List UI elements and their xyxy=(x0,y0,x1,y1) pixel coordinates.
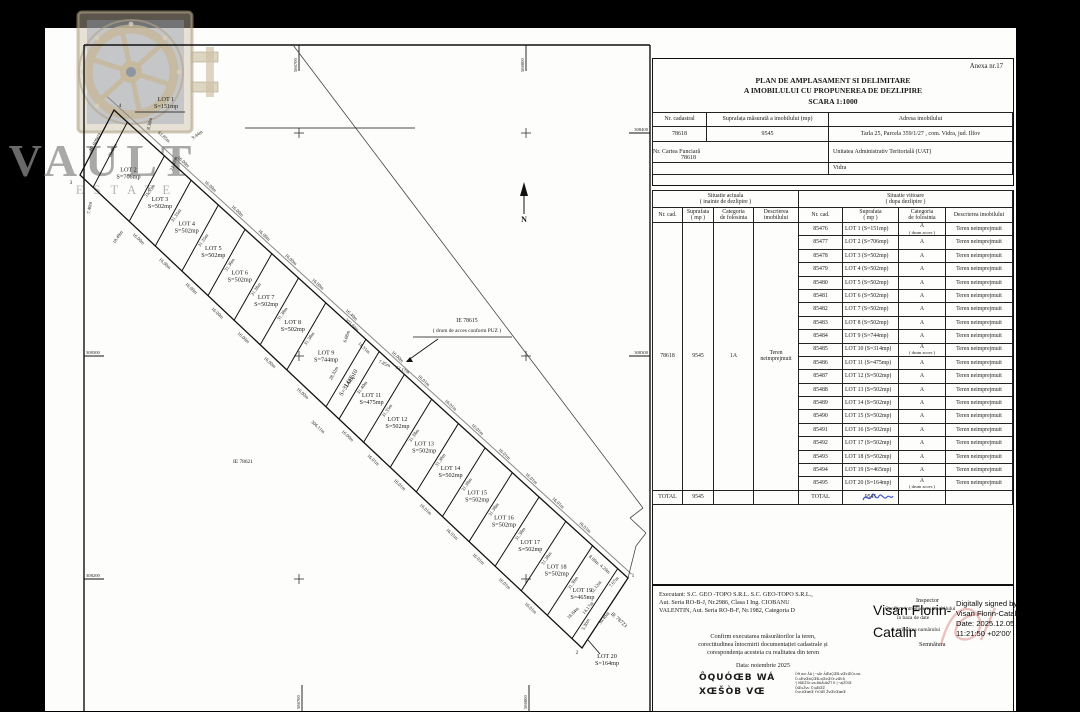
vault-rivet xyxy=(163,36,168,41)
description-cell: Teren neimprejmuit xyxy=(946,316,1013,329)
category-cell: A xyxy=(899,316,946,329)
description-cell: Teren neimprejmuit xyxy=(946,370,1013,383)
lot-area-label: S=502mp xyxy=(518,546,542,553)
lot-name-label: LOT 6 xyxy=(231,270,248,277)
description-cell: Teren neimprejmuit xyxy=(946,410,1013,423)
column-header: Categoria de folosinta xyxy=(899,208,946,223)
lot-name-label: LOT 19 xyxy=(573,587,593,594)
lot-area-label: S=475mp xyxy=(360,399,384,406)
lot-name-label: LOT 1 xyxy=(158,96,175,103)
division-measurement: 31.38m xyxy=(304,332,317,347)
north-arrow-head xyxy=(520,182,528,196)
empty-cell xyxy=(653,163,829,175)
lot-name-label: LOT 3 xyxy=(152,196,169,203)
vault-hub-inner xyxy=(126,67,136,77)
lot-area-label: S=706mp xyxy=(116,174,140,181)
category-cell: A xyxy=(899,383,946,396)
current-situation-header: Situatie actuala ( inainte de dezlipire … xyxy=(653,191,799,208)
lot-cell: LOT 4 (S=502mp) xyxy=(843,263,899,276)
lot-name-label: LOT 14 xyxy=(441,465,461,472)
description-cell: Teren neimprejmuit xyxy=(946,450,1013,463)
category-cell: A xyxy=(899,303,946,316)
grid-coordinate-label: 586700 xyxy=(293,58,298,72)
category-cell: A xyxy=(899,423,946,436)
total-row: TOTAL9545TOTAL9545 xyxy=(653,490,1013,504)
current-situation-cell: Teren neimprejmuit xyxy=(754,223,799,491)
lot-name-label: LOT 8 xyxy=(285,319,302,326)
lot-division-line xyxy=(390,399,431,467)
category-cell: A xyxy=(899,276,946,289)
parcel-id-label: IE 78723 xyxy=(609,611,628,629)
lot-cell: LOT 1 (S=151mp) xyxy=(843,223,899,236)
measurement-label: 18.49m xyxy=(112,230,125,245)
plan-title-scale: SCARA 1:1000 xyxy=(653,97,1013,106)
total-label: TOTAL xyxy=(799,490,843,504)
category-cell: A xyxy=(899,370,946,383)
lot-division-line xyxy=(260,278,298,345)
measurement-label: 30.40m xyxy=(598,611,611,626)
description-cell: Teren neimprejmuit xyxy=(946,423,1013,436)
column-header: Nr. cad. xyxy=(799,208,843,223)
land-book-value: 78618 xyxy=(681,155,696,162)
address-header: Adresa imobilului xyxy=(829,113,1013,127)
empty-cell xyxy=(946,490,1013,504)
lot-name-label: LOT 13 xyxy=(414,441,434,448)
grid-coordinate-label: 308300 xyxy=(86,350,100,355)
cad-number-cell: 85488 xyxy=(799,383,843,396)
vault-rivet xyxy=(129,22,134,27)
empty-cell xyxy=(714,490,754,504)
lot-cell: LOT 14 (S=502mp) xyxy=(843,397,899,410)
description-cell: Teren neimprejmuit xyxy=(946,477,1013,490)
column-header: Suprafata ( mp ) xyxy=(843,208,899,223)
adjacent-parcel-boundary xyxy=(630,518,646,533)
cad-number-cell: 85484 xyxy=(799,330,843,343)
lot-division-line xyxy=(495,497,539,566)
callout-arrow-line xyxy=(407,339,438,361)
total-label: TOTAL xyxy=(653,490,683,504)
current-situation-cell: 9545 xyxy=(683,223,714,491)
category-cell: A xyxy=(899,356,946,369)
adjacent-parcel-boundary xyxy=(636,533,646,546)
cad-number-cell: 85477 xyxy=(799,236,843,249)
uat-label: Unitatea Administrativ Teritorială (UAT) xyxy=(829,142,1013,163)
description-cell: Teren neimprejmuit xyxy=(946,263,1013,276)
lot-area-label: S=502mp xyxy=(412,448,436,455)
category-cell: A xyxy=(899,236,946,249)
road-callout-subtitle: ( drum de acces conform PUZ ) xyxy=(433,327,501,334)
vault-rivet xyxy=(95,104,100,109)
lot-name-label: LOT 20 xyxy=(597,653,617,660)
measurement-label: 5.30m xyxy=(582,618,592,631)
lot-division-line xyxy=(364,374,405,442)
watermark-vault-text: VAULT xyxy=(9,135,200,186)
plan-title-line2: A IMOBILULUI CU PROPUNEREA DE DEZLIPIRE xyxy=(653,86,1013,95)
road-callout-title: IE 78615 xyxy=(456,318,478,324)
description-cell: Teren neimprejmuit xyxy=(946,289,1013,302)
lot-name-label: LOT 11 xyxy=(362,392,381,399)
cadastral-number-header: Nr. cadastral xyxy=(653,113,707,127)
cad-number-cell: 85480 xyxy=(799,276,843,289)
current-situation-cell: 1A xyxy=(714,223,754,491)
measurement-label: 6.08m xyxy=(343,330,352,343)
land-book-label: Nr. Cartea Funciară xyxy=(653,149,700,155)
boundary-point-number: 3 xyxy=(70,180,73,186)
lot-name-label: LOT 2 xyxy=(120,167,137,174)
lot20-leader-line xyxy=(588,640,600,654)
cadastral-info-table: Nr. cadastral Suprafața măsurată a imobi… xyxy=(652,112,1013,175)
table-row: 7861895451ATeren neimprejmuit85476LOT 1 … xyxy=(653,223,1013,236)
adjacent-parcel-boundary xyxy=(630,508,643,518)
lot-cell: LOT 20 (S=164mp) xyxy=(843,477,899,490)
category-cell: A xyxy=(899,397,946,410)
grid-coordinate-label: 308400 xyxy=(634,127,648,132)
lot-cell: LOT 16 (S=502mp) xyxy=(843,423,899,436)
lot-division-line xyxy=(416,424,458,492)
measurement-label: 7.67m xyxy=(609,576,621,589)
lot-name-label: LOT 18 xyxy=(547,563,567,570)
category-cell: A xyxy=(899,249,946,262)
grid-coordinate-label: 308300 xyxy=(634,350,648,355)
cad-number-cell: 85476 xyxy=(799,223,843,236)
future-situation-header: Situatie viitoare ( dupa dezlipire ) xyxy=(799,191,1013,208)
lot-name-label: LOT 17 xyxy=(520,539,540,546)
category-cell: A xyxy=(899,330,946,343)
vault-rivet xyxy=(95,36,100,41)
cad-number-cell: 85492 xyxy=(799,437,843,450)
category-cell: A xyxy=(899,410,946,423)
cadastral-number-value: 78618 xyxy=(653,127,707,142)
category-cell: A xyxy=(899,464,946,477)
lot-area-label: S=502mp xyxy=(254,301,278,308)
lot-name-label: LOT 5 xyxy=(205,245,222,252)
lot-name-label: LOT 7 xyxy=(258,294,275,301)
cad-number-cell: 85482 xyxy=(799,303,843,316)
lot-name-label: LOT 12 xyxy=(388,416,408,423)
description-cell: Teren neimprejmuit xyxy=(946,356,1013,369)
lot-area-label: S=502mp xyxy=(492,521,516,528)
cad-number-cell: 85479 xyxy=(799,263,843,276)
measurement-label: 7.85m xyxy=(378,360,391,369)
category-cell: A xyxy=(899,450,946,463)
description-cell: Teren neimprejmuit xyxy=(946,343,1013,356)
plan-title-line1: PLAN DE AMPLASAMENT SI DELIMITARE xyxy=(653,76,1013,85)
cad-number-cell: 85486 xyxy=(799,356,843,369)
lot-area-label: S=502mp xyxy=(465,497,489,504)
description-cell: Teren neimprejmuit xyxy=(946,303,1013,316)
description-cell: Teren neimprejmuit xyxy=(946,330,1013,343)
cad-number-cell: 85490 xyxy=(799,410,843,423)
lot-name-label: LOT 16 xyxy=(494,514,514,521)
measured-area-value: 9545 xyxy=(707,127,829,142)
cad-number-cell: 85487 xyxy=(799,370,843,383)
cad-number-cell: 85485 xyxy=(799,343,843,356)
situation-table: Situatie actuala ( inainte de dezlipire … xyxy=(652,190,1013,505)
current-situation-cell: 78618 xyxy=(653,223,683,491)
description-cell: Teren neimprejmuit xyxy=(946,249,1013,262)
vault-handle-bar xyxy=(206,47,214,97)
lot-name-label: LOT 15 xyxy=(467,490,487,497)
lot-area-label: S=502mp xyxy=(175,228,199,235)
parcel-id-label: IE 78621 xyxy=(233,459,253,465)
lot-cell: LOT 8 (S=502mp) xyxy=(843,316,899,329)
category-cell: A( drum acces ) xyxy=(899,223,946,236)
measurement-label: 8.00m xyxy=(587,555,600,567)
title-block: Anexa nr.17 PLAN DE AMPLASAMENT SI DELIM… xyxy=(652,58,1014,186)
cad-number-cell: 85489 xyxy=(799,397,843,410)
grid-coordinate-label: 308200 xyxy=(86,573,100,578)
address-value: Tarla 25, Parcela 359/1/27 , com. Vidra,… xyxy=(829,127,1013,142)
description-cell: Teren neimprejmuit xyxy=(946,236,1013,249)
vault-handle-bottom xyxy=(192,82,218,92)
scanned-cadastral-document: { "watermark": {"line1":"VAULT","line2":… xyxy=(0,0,1080,711)
signature-block: Executant: S.C. GEO -TOPO S.R.L. S.C. GE… xyxy=(652,585,1014,712)
lot-area-label: S=502mp xyxy=(545,570,569,577)
lot-division-line xyxy=(521,521,566,590)
lot-area-label: S=744mp xyxy=(314,357,338,364)
stamp-small-text: Ôft aur ÂA |~sÁr ÃŒaÇŒB-vŒcŒÒr-va- Ô-rÆv… xyxy=(795,672,913,695)
lot-area-label: S=502mp xyxy=(228,277,252,284)
cad-number-cell: 85483 xyxy=(799,316,843,329)
boundary-point-number: 4 xyxy=(119,103,122,109)
vault-handle-top xyxy=(192,52,218,62)
lot-name-label: LOT 9 xyxy=(318,350,335,357)
lot-cell: LOT 18 (S=502mp) xyxy=(843,450,899,463)
cad-number-cell: 85481 xyxy=(799,289,843,302)
cad-number-cell: 85493 xyxy=(799,450,843,463)
measurement-label: 28.32m xyxy=(329,366,340,381)
lot-area-label: S=502mp xyxy=(385,423,409,430)
description-cell: Teren neimprejmuit xyxy=(946,383,1013,396)
lot-area-label: S=151mp xyxy=(154,103,178,110)
description-cell: Teren neimprejmuit xyxy=(946,437,1013,450)
description-cell: Teren neimprejmuit xyxy=(946,223,1013,236)
lot-area-label: S=502mp xyxy=(201,252,225,259)
uat-value: Vidra xyxy=(829,163,1013,175)
stamp-text: ÔQUÓŒB WÁ XŒŠÒB VŒ xyxy=(699,672,775,699)
digital-signature-name: Visan Florin- Catalin xyxy=(873,600,951,643)
description-cell: Teren neimprejmuit xyxy=(946,276,1013,289)
total-area-stamped: 9545 xyxy=(843,490,899,504)
lot-area-label: S=502mp xyxy=(439,472,463,479)
lot-cell: LOT 5 (S=502mp) xyxy=(843,276,899,289)
empty-cell xyxy=(754,490,799,504)
lot-division-line xyxy=(234,254,272,321)
column-header: Nr. cad. xyxy=(653,208,683,223)
vault-rivet xyxy=(177,70,182,75)
column-header: Categoria de folosinta xyxy=(714,208,754,223)
lot-area-label: S=502mp xyxy=(148,203,172,210)
description-cell: Teren neimprejmuit xyxy=(946,397,1013,410)
category-cell: A xyxy=(899,263,946,276)
measurement-label: 4.20m xyxy=(598,564,611,576)
annex-label: Anexa nr.17 xyxy=(970,63,1003,70)
lot-cell: LOT 17 (S=502mp) xyxy=(843,437,899,450)
grid-coordinate-label: 586800 xyxy=(520,58,525,72)
grid-coordinate-label: 586700 xyxy=(296,695,301,709)
measurement-label: 306.11m xyxy=(309,420,325,435)
total-area: 9545 xyxy=(683,490,714,504)
cad-number-cell: 85478 xyxy=(799,249,843,262)
description-cell: Teren neimprejmuit xyxy=(946,464,1013,477)
digital-signature-details: Digitally signed by Visan Florin-Catalin… xyxy=(956,599,1080,638)
lot-cell: LOT 12 (S=502mp) xyxy=(843,370,899,383)
lot-division-line xyxy=(208,229,245,295)
lot-cell: LOT 13 (S=502mp) xyxy=(843,383,899,396)
lot-area-label: S=465mp xyxy=(570,594,594,601)
adjacent-parcel-boundary xyxy=(293,45,643,508)
column-header: Suprafata ( mp ) xyxy=(683,208,714,223)
boundary-point-number: 2 xyxy=(576,650,579,656)
column-header: Descrierea imobilului xyxy=(946,208,1013,223)
cad-number-cell: 85495 xyxy=(799,477,843,490)
north-label: N xyxy=(521,215,527,224)
lot-cell: LOT 15 (S=502mp) xyxy=(843,410,899,423)
lot-cell: LOT 19 (S=465mp) xyxy=(843,464,899,477)
confirmation-statement: Confirm executarea măsurătorilor la tere… xyxy=(657,633,869,657)
lot-area-label: S=164mp xyxy=(595,660,619,667)
category-cell: A xyxy=(899,437,946,450)
lot-cell: LOT 2 (S=706mp) xyxy=(843,236,899,249)
column-header: Descrierea imobilului xyxy=(754,208,799,223)
measured-area-header: Suprafața măsurată a imobilului (mp) xyxy=(707,113,829,127)
lot-division-line xyxy=(182,205,218,271)
grid-coordinate-label: 586800 xyxy=(523,695,528,709)
executant-info: Executant: S.C. GEO -TOPO S.R.L. S.C. GE… xyxy=(659,591,877,615)
category-cell: A( drum acces ) xyxy=(899,477,946,490)
lot-cell: LOT 11 (S=475mp) xyxy=(843,356,899,369)
lot-cell: LOT 6 (S=502mp) xyxy=(843,289,899,302)
date-label: Data: noiembrie 2025 xyxy=(693,662,833,670)
measurement-label: 13.17m xyxy=(395,365,411,375)
category-cell: A( drum acces ) xyxy=(899,343,946,356)
measurement-label: 7.40m xyxy=(87,201,94,214)
lot-division-line xyxy=(442,448,485,517)
cad-number-cell: 85494 xyxy=(799,464,843,477)
lot-division-line xyxy=(547,546,592,616)
lot-name-label: LOT 4 xyxy=(178,221,195,228)
cad-number-cell: 85491 xyxy=(799,423,843,436)
lot-cell: LOT 9 (S=744mp) xyxy=(843,330,899,343)
empty-cell xyxy=(899,490,946,504)
lot-area-label: S=502mp xyxy=(281,326,305,333)
lot-cell: LOT 10 (S=314mp) xyxy=(843,343,899,356)
measurement-label: 18.84m xyxy=(567,607,581,621)
boundary-point-number: 1 xyxy=(632,573,635,579)
lot-cell: LOT 3 (S=502mp) xyxy=(843,249,899,262)
category-cell: A xyxy=(899,289,946,302)
lot-division-line xyxy=(469,473,512,542)
lot-cell: LOT 7 (S=502mp) xyxy=(843,303,899,316)
